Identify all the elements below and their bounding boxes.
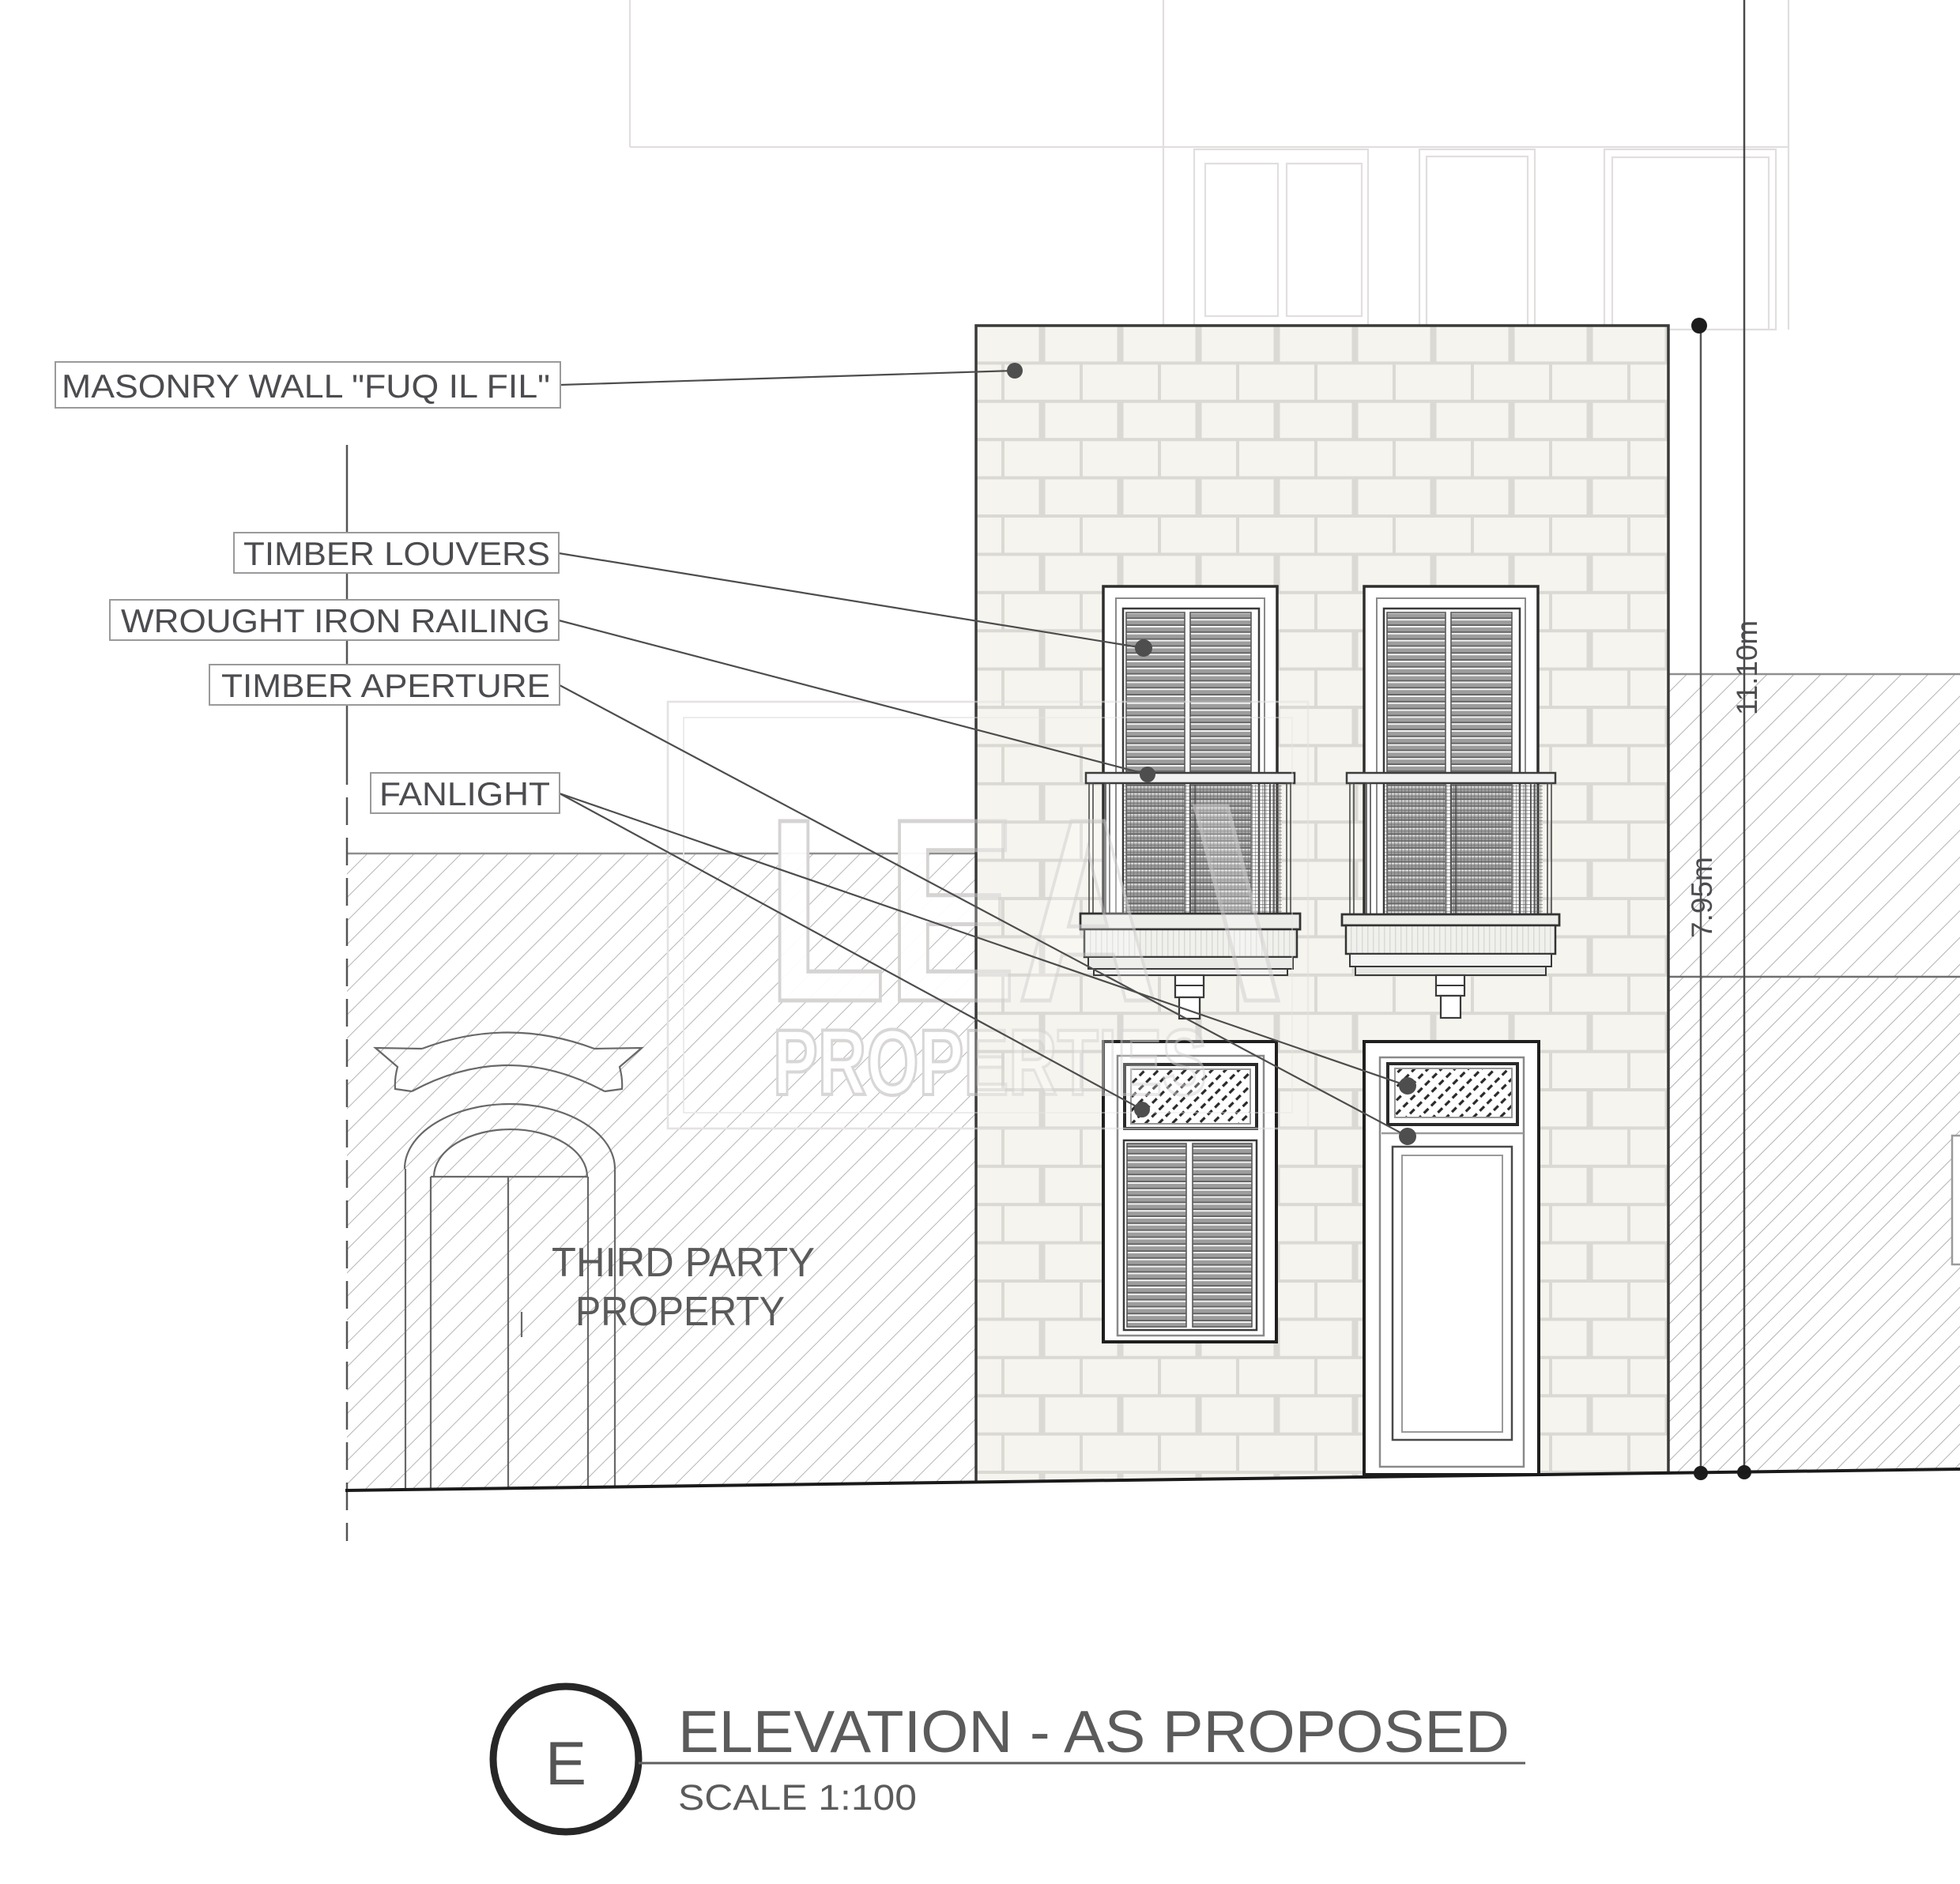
svg-text:SCALE 1:100: SCALE 1:100	[678, 1777, 917, 1818]
svg-text:WROUGHT IRON RAILING: WROUGHT IRON RAILING	[121, 602, 550, 639]
svg-text:7.95m: 7.95m	[1686, 857, 1718, 938]
svg-text:ELEVATION - AS PROPOSED: ELEVATION - AS PROPOSED	[678, 1698, 1510, 1765]
svg-text:THIRD PARTY: THIRD PARTY	[552, 1240, 815, 1286]
svg-text:TIMBER LOUVERS: TIMBER LOUVERS	[243, 535, 550, 572]
svg-text:PROPERTY: PROPERTY	[575, 1289, 785, 1335]
svg-text:E: E	[545, 1728, 586, 1798]
svg-text:11.10m: 11.10m	[1731, 620, 1763, 715]
svg-text:TIMBER APERTURE: TIMBER APERTURE	[221, 667, 550, 704]
svg-text:FANLIGHT: FANLIGHT	[379, 775, 550, 812]
svg-text:MASONRY WALL "FUQ IL FIL": MASONRY WALL "FUQ IL FIL"	[62, 367, 550, 405]
